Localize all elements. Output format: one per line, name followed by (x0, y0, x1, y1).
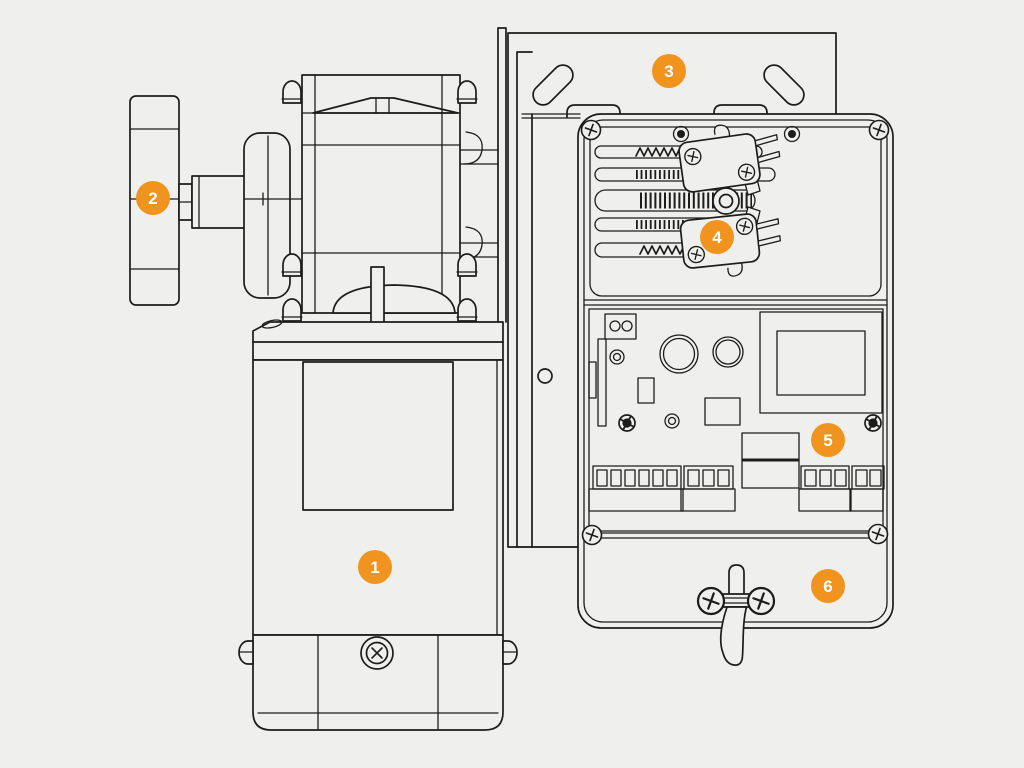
panel-screw-icon (869, 525, 888, 544)
motor-body-drawing (253, 360, 503, 635)
callout-badge-4[interactable]: 4 (700, 220, 734, 254)
callout-badge-3[interactable]: 3 (652, 54, 686, 88)
cam-nut (713, 188, 739, 214)
clamp-screw-icon (698, 588, 724, 614)
panel-screw-icon (870, 121, 889, 140)
cable-upper (729, 565, 744, 597)
diagram-drawing (0, 0, 1024, 768)
clamp-screw-icon (748, 588, 774, 614)
callout-badge-5[interactable]: 5 (811, 423, 845, 457)
panel-screw-icon (582, 121, 601, 140)
output-shaft-drawing (179, 176, 245, 228)
callout-badge-6[interactable]: 6 (811, 569, 845, 603)
control-box-drawing (578, 114, 893, 665)
motor-base-drawing (239, 635, 517, 730)
callout-badge-1[interactable]: 1 (358, 550, 392, 584)
panel-screw-icon (583, 526, 602, 545)
callout-badge-2[interactable]: 2 (136, 181, 170, 215)
cable-lower (721, 607, 747, 665)
parts-diagram: 1 2 3 4 5 6 (0, 0, 1024, 768)
